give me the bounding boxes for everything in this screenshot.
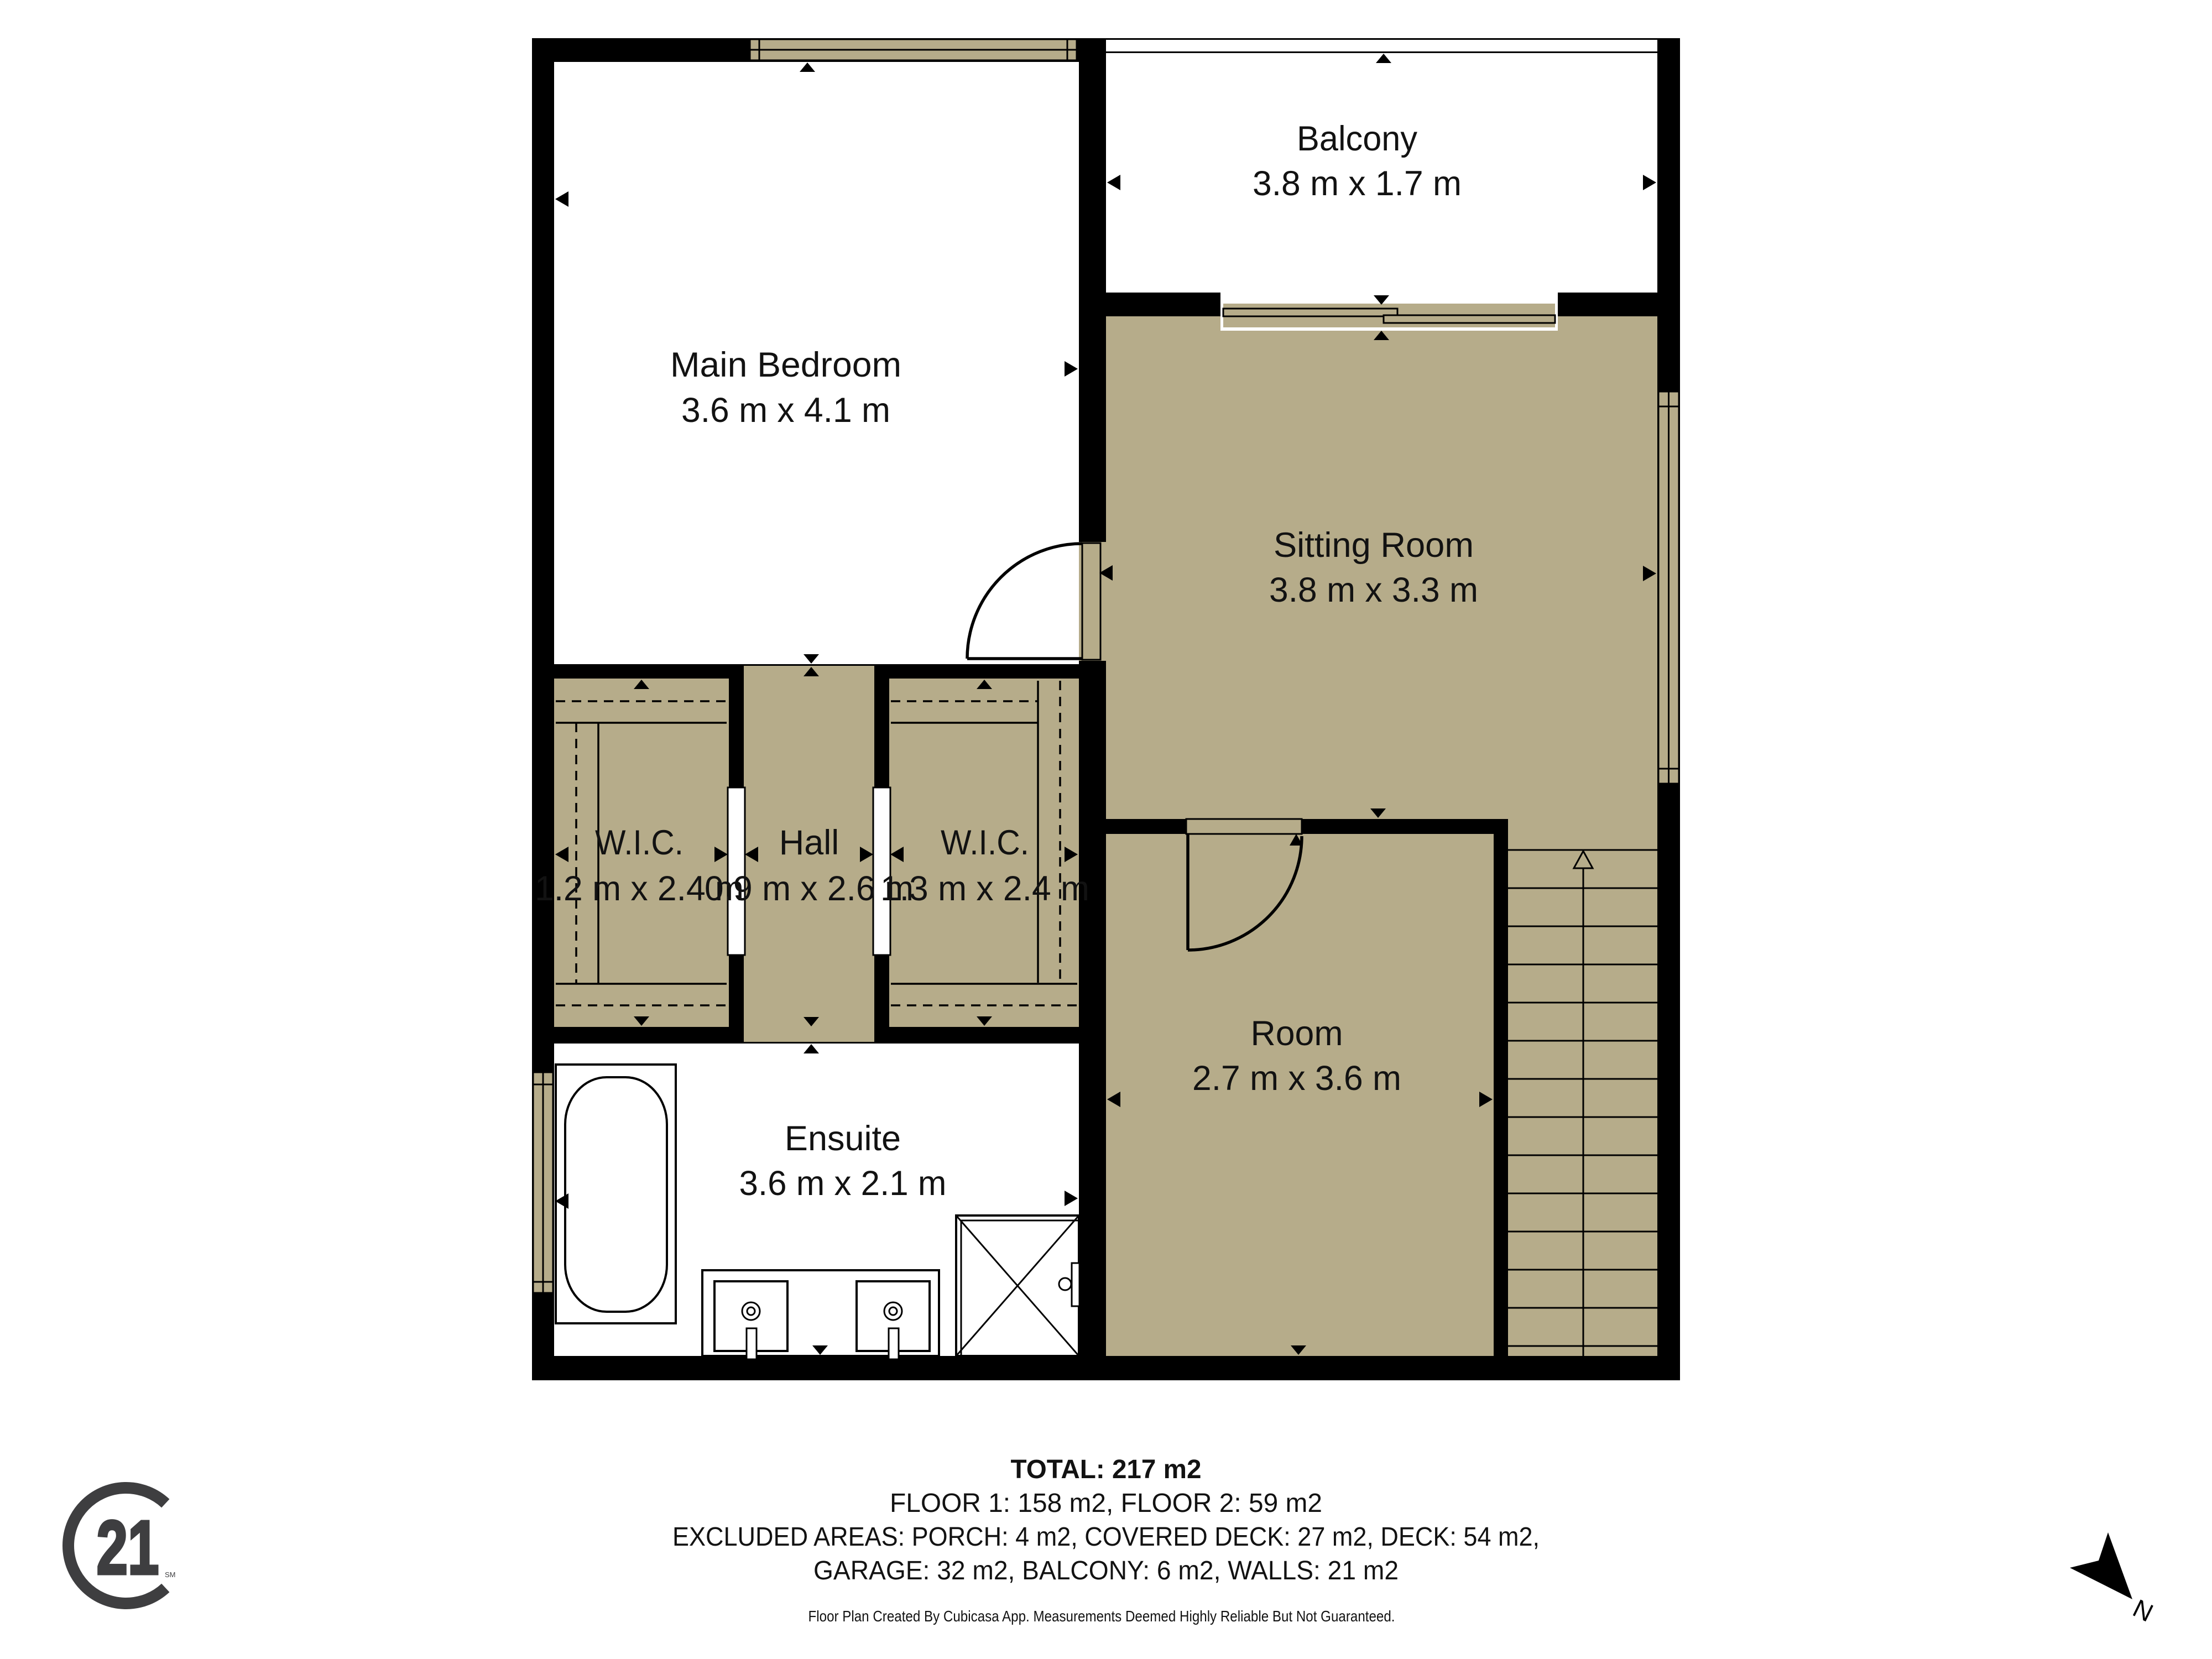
svg-text:Balcony: Balcony bbox=[1297, 119, 1417, 158]
svg-text:Room: Room bbox=[1251, 1014, 1343, 1053]
svg-text:FLOOR 1: 158 m2, FLOOR 2: 59 m: FLOOR 1: 158 m2, FLOOR 2: 59 m2 bbox=[890, 1489, 1322, 1518]
svg-text:Hall: Hall bbox=[779, 823, 839, 862]
svg-text:Floor Plan Created By Cubicasa: Floor Plan Created By Cubicasa App. Meas… bbox=[808, 1608, 1395, 1625]
svg-text:W.I.C.: W.I.C. bbox=[595, 823, 684, 862]
svg-text:Ensuite: Ensuite bbox=[785, 1119, 901, 1158]
svg-text:TOTAL: 217 m2: TOTAL: 217 m2 bbox=[1011, 1455, 1202, 1484]
svg-text:Sitting Room: Sitting Room bbox=[1274, 526, 1474, 565]
svg-text:EXCLUDED AREAS: PORCH: 4 m2, C: EXCLUDED AREAS: PORCH: 4 m2, COVERED DEC… bbox=[672, 1522, 1540, 1552]
svg-text:2.7 m x 3.6 m: 2.7 m x 3.6 m bbox=[1192, 1059, 1401, 1098]
svg-text:3.6 m x 4.1 m: 3.6 m x 4.1 m bbox=[681, 391, 890, 430]
svg-text:3.8 m x 1.7 m: 3.8 m x 1.7 m bbox=[1253, 164, 1462, 203]
svg-text:3.8 m x 3.3 m: 3.8 m x 3.3 m bbox=[1269, 571, 1478, 609]
svg-text:21: 21 bbox=[97, 1505, 159, 1590]
svg-text:1.3 m x 2.4 m: 1.3 m x 2.4 m bbox=[880, 869, 1089, 908]
svg-text:SM: SM bbox=[165, 1571, 176, 1579]
svg-text:W.I.C.: W.I.C. bbox=[941, 823, 1029, 862]
svg-text:3.6 m x 2.1 m: 3.6 m x 2.1 m bbox=[739, 1164, 947, 1203]
svg-text:Main Bedroom: Main Bedroom bbox=[670, 346, 901, 384]
svg-text:GARAGE: 32 m2, BALCONY: 6 m2,: GARAGE: 32 m2, BALCONY: 6 m2, WALLS: 21 … bbox=[813, 1556, 1399, 1585]
